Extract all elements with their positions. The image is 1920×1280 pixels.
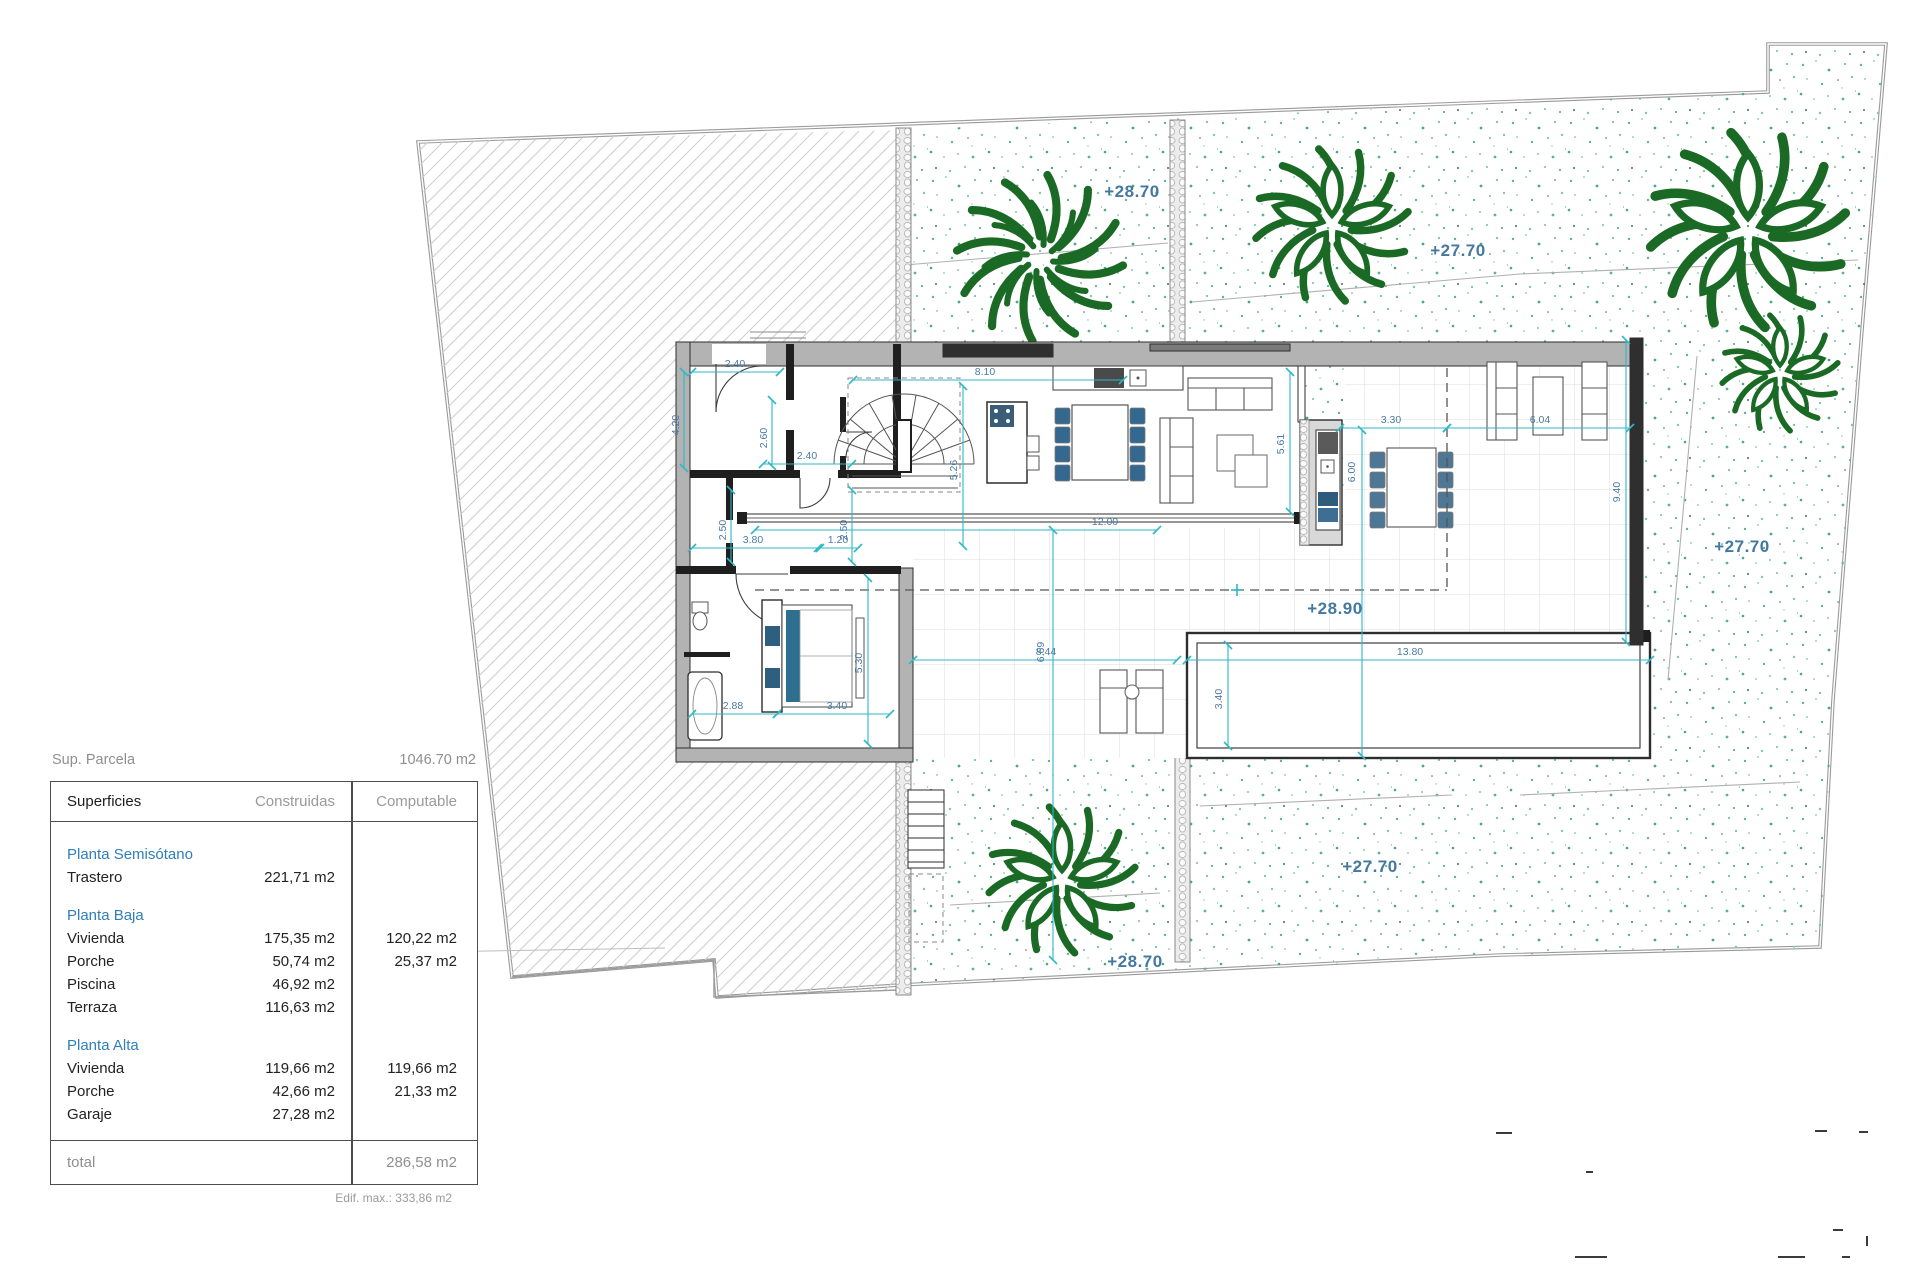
edif-max-note: Edif. max.: 333,86 m2: [50, 1191, 478, 1205]
table-header: Superficies Construidas Computable: [51, 782, 477, 822]
row-label: Trastero: [51, 866, 199, 889]
dim-label: 4.20: [670, 415, 682, 436]
parcel-value: 1046.70 m2: [399, 752, 476, 768]
dim-label: 2.40: [725, 358, 746, 370]
row-construidas: 46,92 m2: [199, 973, 335, 996]
dim-label: 12.00: [1092, 516, 1118, 528]
row-computable: 25,37 m2: [335, 950, 477, 973]
dim-label: 8.10: [975, 366, 996, 378]
row-construidas: 116,63 m2: [199, 996, 335, 1019]
row-computable: 120,22 m2: [335, 927, 477, 950]
dim-label: 2.50: [717, 520, 729, 541]
level-label: +28.90: [1307, 599, 1362, 618]
row-label: Piscina: [51, 973, 199, 996]
kitchen-wall-unit: [1300, 420, 1342, 545]
surface-summary-panel: Sup. Parcela 1046.70 m2 Superficies Cons…: [50, 752, 478, 1205]
row-label: Vivienda: [51, 927, 199, 950]
bedroom: [762, 600, 864, 712]
parcel-summary: Sup. Parcela 1046.70 m2: [50, 752, 478, 768]
dining-table: [1055, 405, 1145, 481]
row-label: Porche: [51, 950, 199, 973]
table-row: Garaje 27,28 m2: [51, 1103, 477, 1126]
table-row: Piscina 46,92 m2: [51, 973, 477, 996]
table-row: Vivienda 119,66 m2 119,66 m2: [51, 1057, 477, 1080]
dim-label: 3.30: [1381, 414, 1402, 426]
total-value: 286,58 m2: [335, 1154, 477, 1171]
level-label: +27.70: [1714, 537, 1769, 556]
section-label: Planta Semisótano: [51, 843, 347, 866]
row-construidas: 42,66 m2: [199, 1080, 335, 1103]
surface-table: Superficies Construidas Computable Plant…: [50, 781, 478, 1185]
header-construidas: Construidas: [199, 793, 335, 810]
table-body: Planta Semisótano Trastero 221,71 m2 Pla…: [51, 822, 477, 1140]
section-label: Planta Baja: [51, 904, 347, 927]
level-label: +27.70: [1430, 241, 1485, 260]
table-row: Porche 42,66 m2 21,33 m2: [51, 1080, 477, 1103]
dim-label: 6.69: [1035, 642, 1047, 663]
dim-label: 3.80: [743, 534, 764, 546]
row-construidas: 50,74 m2: [199, 950, 335, 973]
row-label: Garaje: [51, 1103, 199, 1126]
total-row: total 286,58 m2: [51, 1140, 477, 1184]
dim-label: 2.88: [723, 700, 744, 712]
nightstand: [765, 668, 780, 688]
dim-label: 3.40: [1213, 689, 1225, 710]
dim-label: 5.26: [948, 460, 960, 481]
total-label: total: [51, 1154, 199, 1171]
parcel-label: Sup. Parcela: [52, 752, 135, 768]
nightstand: [765, 626, 780, 646]
section-row: Planta Baja: [51, 904, 477, 927]
header-superficies: Superficies: [51, 793, 199, 810]
row-construidas: 175,35 m2: [199, 927, 335, 950]
table-row: Trastero 221,71 m2: [51, 866, 477, 889]
dim-label: 6.04: [1530, 414, 1551, 426]
dim-label: 2.40: [797, 450, 818, 462]
column-divider: [351, 782, 353, 1184]
dim-label: 5.61: [1275, 434, 1287, 455]
dim-label: 6.00: [1346, 462, 1358, 483]
row-construidas: 27,28 m2: [199, 1103, 335, 1126]
dim-label: 3.40: [827, 700, 848, 712]
toilet: [692, 602, 708, 613]
dim-label: 13.80: [1397, 646, 1423, 658]
dim-label: 2.60: [758, 428, 770, 449]
level-label: +28.70: [1107, 952, 1162, 971]
table-row: Vivienda 175,35 m2 120,22 m2: [51, 927, 477, 950]
row-label: Vivienda: [51, 1057, 199, 1080]
row-label: Porche: [51, 1080, 199, 1103]
outdoor-dining: [1370, 448, 1453, 528]
print-marks: [1496, 1131, 1868, 1257]
row-computable: 119,66 m2: [335, 1057, 477, 1080]
row-computable: 21,33 m2: [335, 1080, 477, 1103]
cooktop-icon: [1094, 368, 1124, 388]
header-computable: Computable: [335, 793, 477, 810]
row-label: Terraza: [51, 996, 199, 1019]
section-row: Planta Alta: [51, 1034, 477, 1057]
dim-label: 9.40: [1611, 482, 1623, 503]
dim-label: 5.30: [853, 653, 865, 674]
table-row: Porche 50,74 m2 25,37 m2: [51, 950, 477, 973]
section-row: Planta Semisótano: [51, 843, 477, 866]
row-construidas: 221,71 m2: [199, 866, 335, 889]
floor-plan-sheet: 2.40 2.40 3.80 1.20 8.10 12.00 2.88 3.40…: [0, 0, 1920, 1280]
table-row: Terraza 116,63 m2: [51, 996, 477, 1019]
level-label: +27.70: [1342, 857, 1397, 876]
dim-label: 2.50: [838, 520, 850, 541]
row-construidas: 119,66 m2: [199, 1057, 335, 1080]
section-label: Planta Alta: [51, 1034, 347, 1057]
level-label: +28.70: [1104, 182, 1159, 201]
